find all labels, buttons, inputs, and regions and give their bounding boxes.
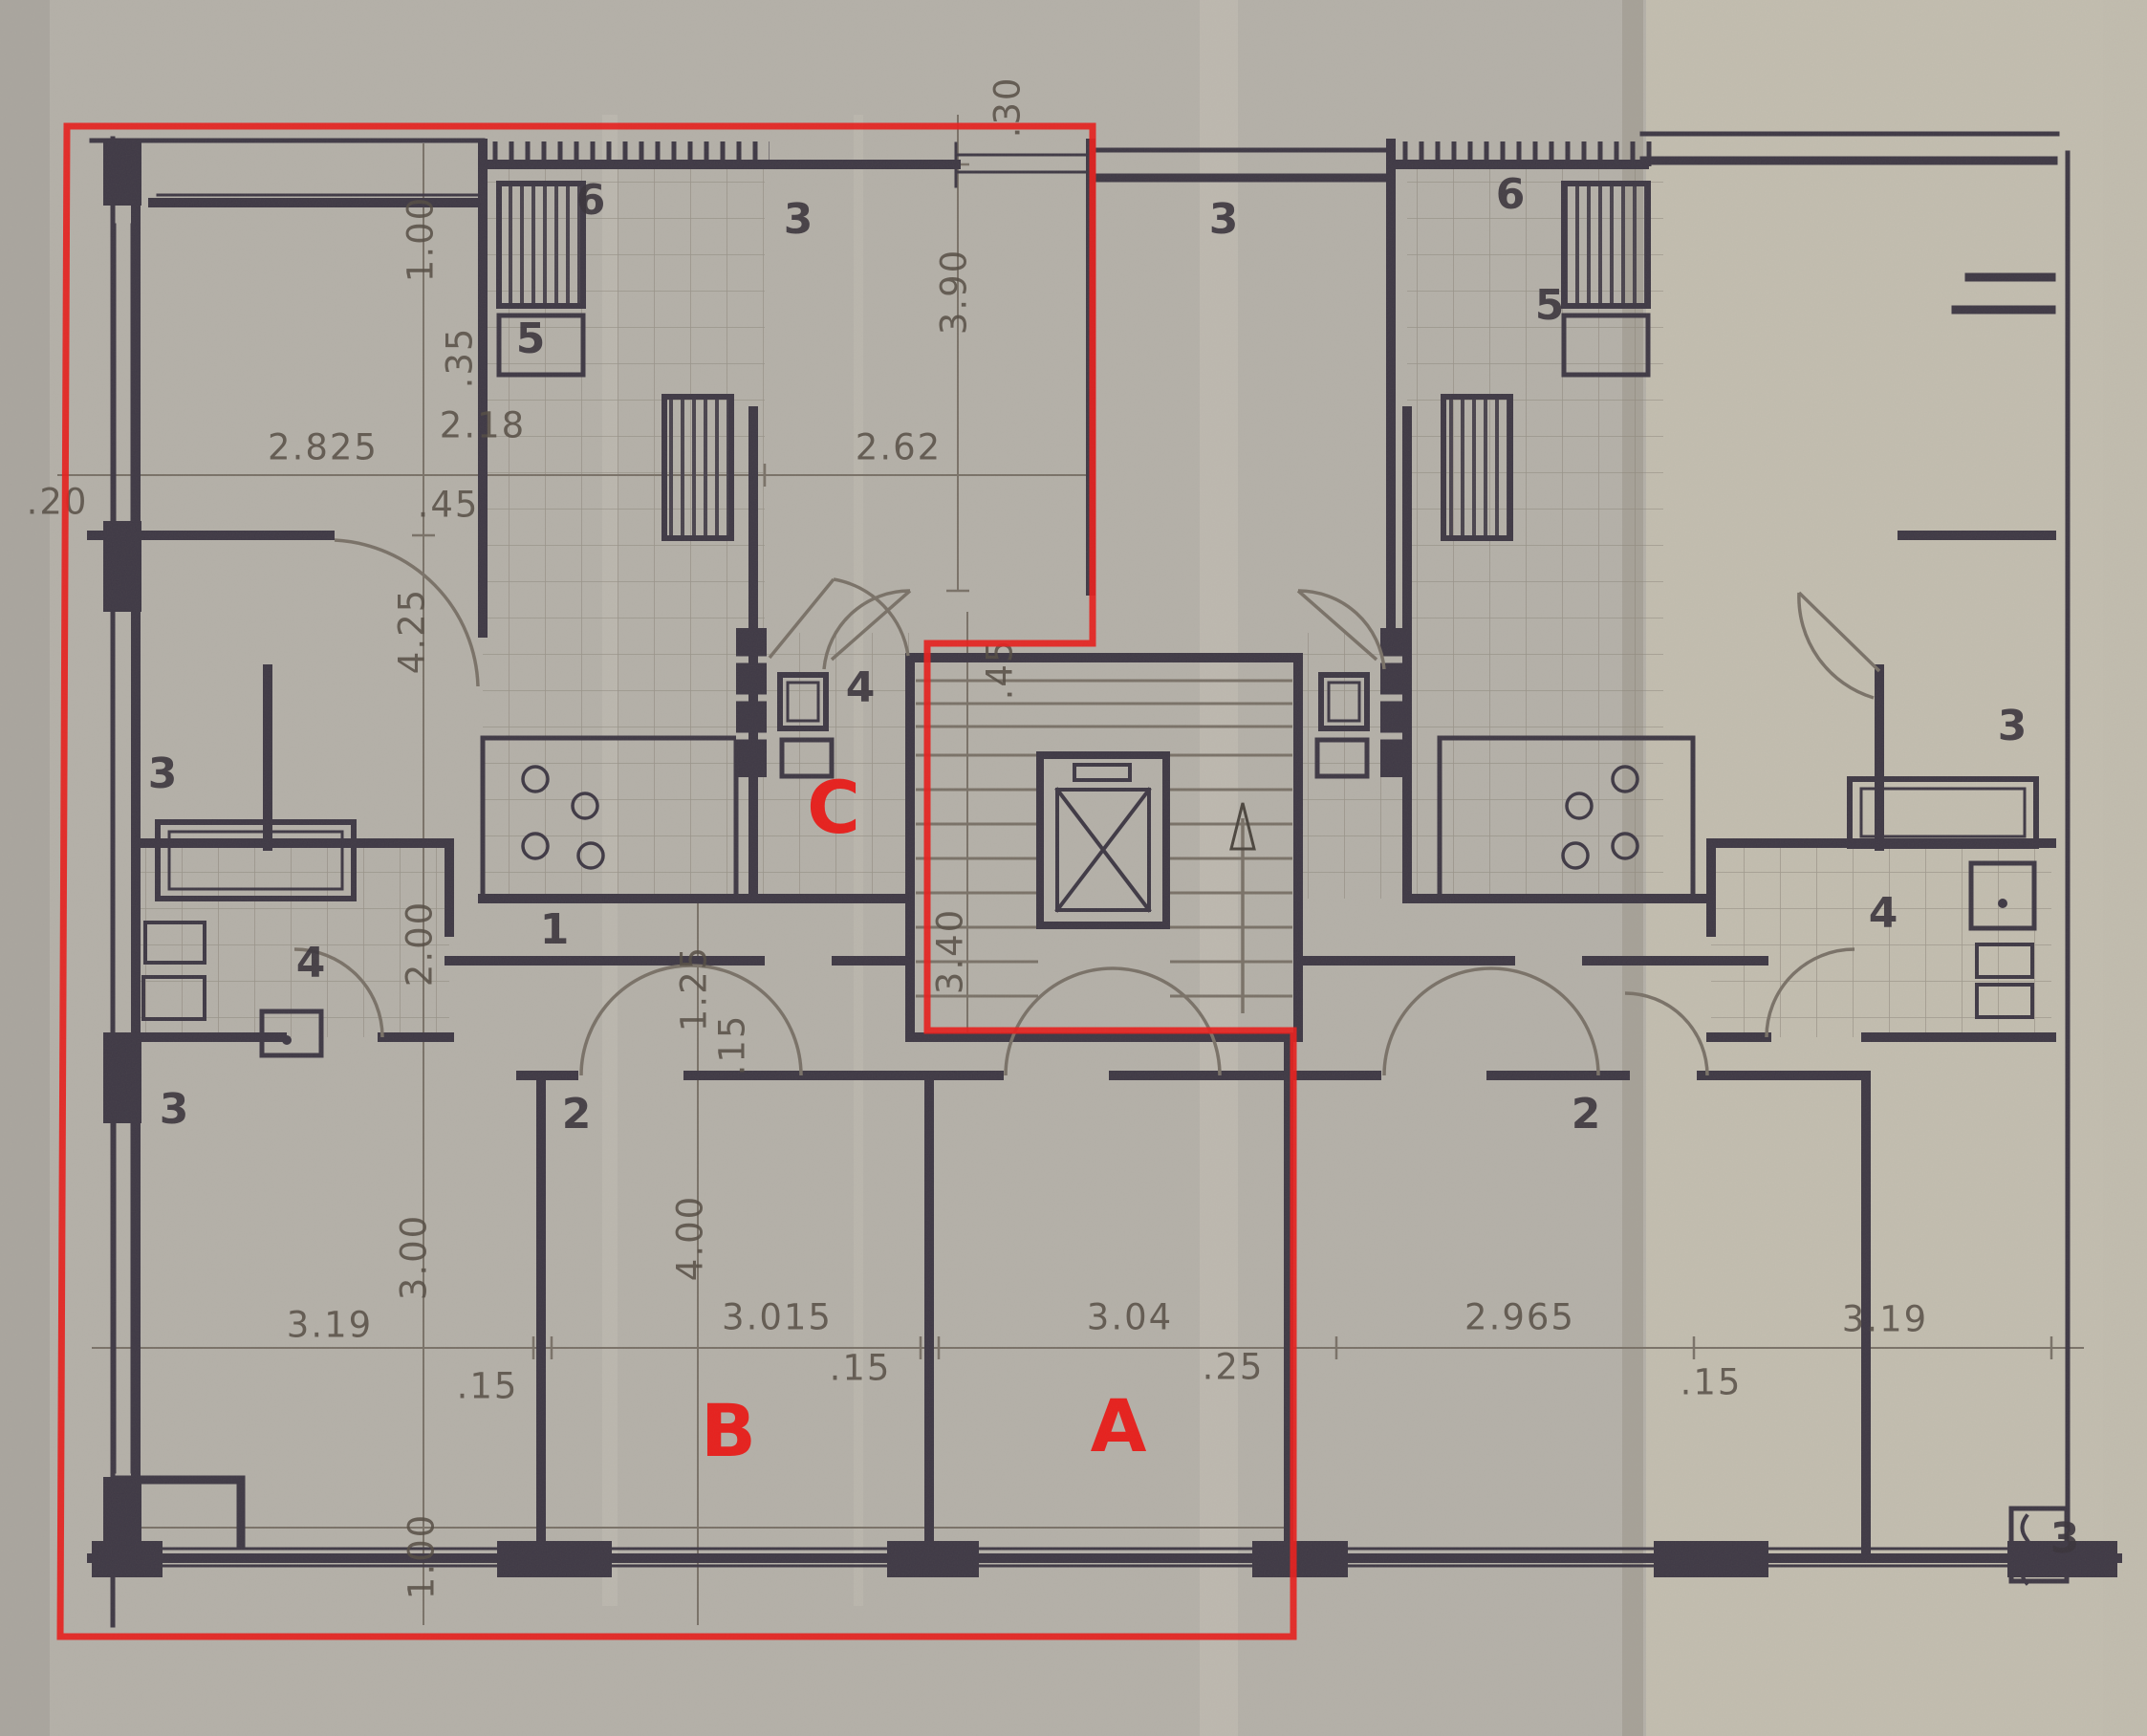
plan-svg: 2.8252.182.62.20.453.19.153.015.153.04.2… [0,0,2147,1736]
scanned-floor-plan: 2.8252.182.62.20.453.19.153.015.153.04.2… [0,0,2147,1736]
paper-grain [0,0,2147,1736]
